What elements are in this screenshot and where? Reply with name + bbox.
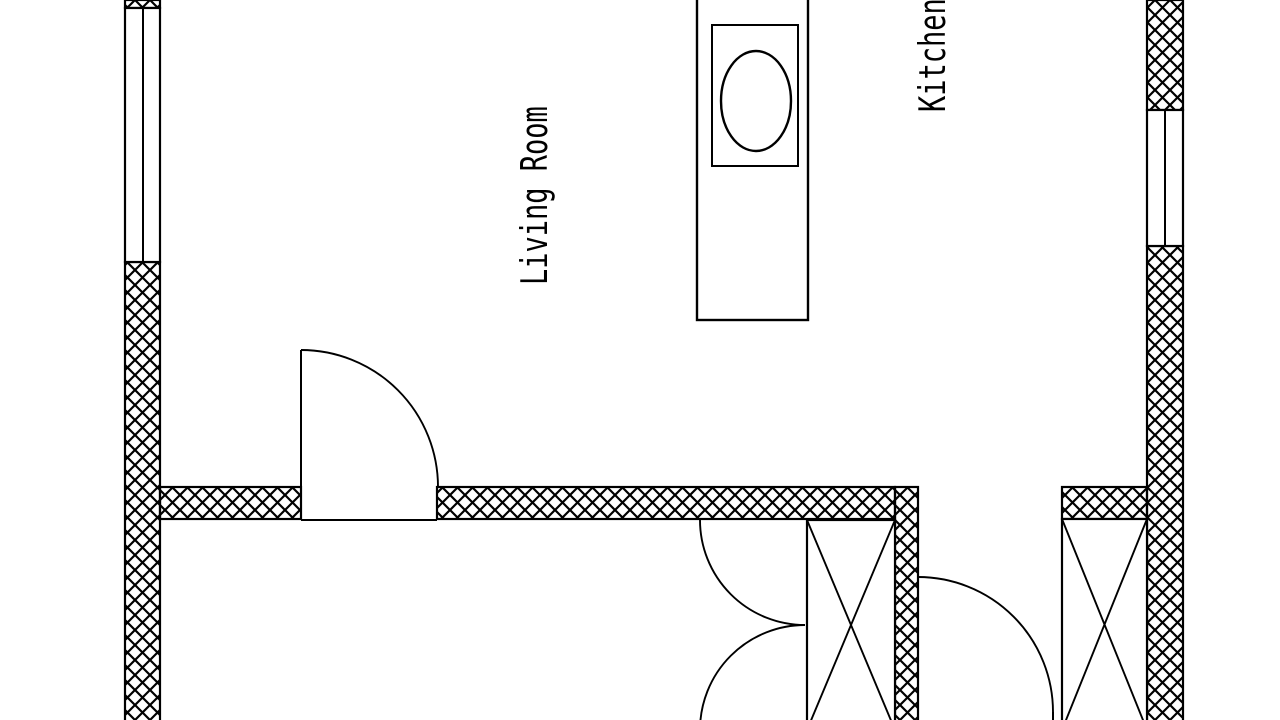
right-wall-hatch-bottom xyxy=(1147,246,1183,720)
left-wall-hatch-bottom xyxy=(125,262,160,720)
kitchen-island xyxy=(697,0,808,320)
right-shaft-box xyxy=(1062,519,1147,720)
interior-wall-right-segment xyxy=(437,487,895,519)
corridor-wall xyxy=(895,487,918,720)
kitchen-label: Kitchen xyxy=(911,0,954,112)
right-shaft-lintel-wall xyxy=(1062,487,1147,519)
kitchen-door-swing-arc xyxy=(918,577,1053,712)
left-shaft-box xyxy=(807,520,895,720)
interior-wall xyxy=(160,487,895,520)
left-wall-hatch-top xyxy=(125,0,160,8)
double-door-upper-swing-arc xyxy=(700,520,805,625)
left-wall-window xyxy=(125,8,160,262)
living-room-door-swing-arc xyxy=(301,350,438,487)
living-room-label: Living Room xyxy=(513,106,556,285)
living-room-door xyxy=(301,350,438,519)
floor-plan-drawing: Living Room Kitchen xyxy=(0,0,1280,720)
sink-bowl xyxy=(721,51,791,151)
right-exterior-wall xyxy=(1147,0,1183,720)
left-exterior-wall xyxy=(125,0,160,720)
right-wall-window xyxy=(1147,110,1183,246)
floor-plan-svg: Living Room Kitchen xyxy=(0,0,1280,720)
double-door-lower-swing-arc xyxy=(700,625,805,720)
double-swing-door xyxy=(700,520,805,720)
right-wall-hatch-top xyxy=(1147,0,1183,110)
interior-wall-left-segment xyxy=(160,487,301,519)
kitchen-door xyxy=(918,577,1053,720)
